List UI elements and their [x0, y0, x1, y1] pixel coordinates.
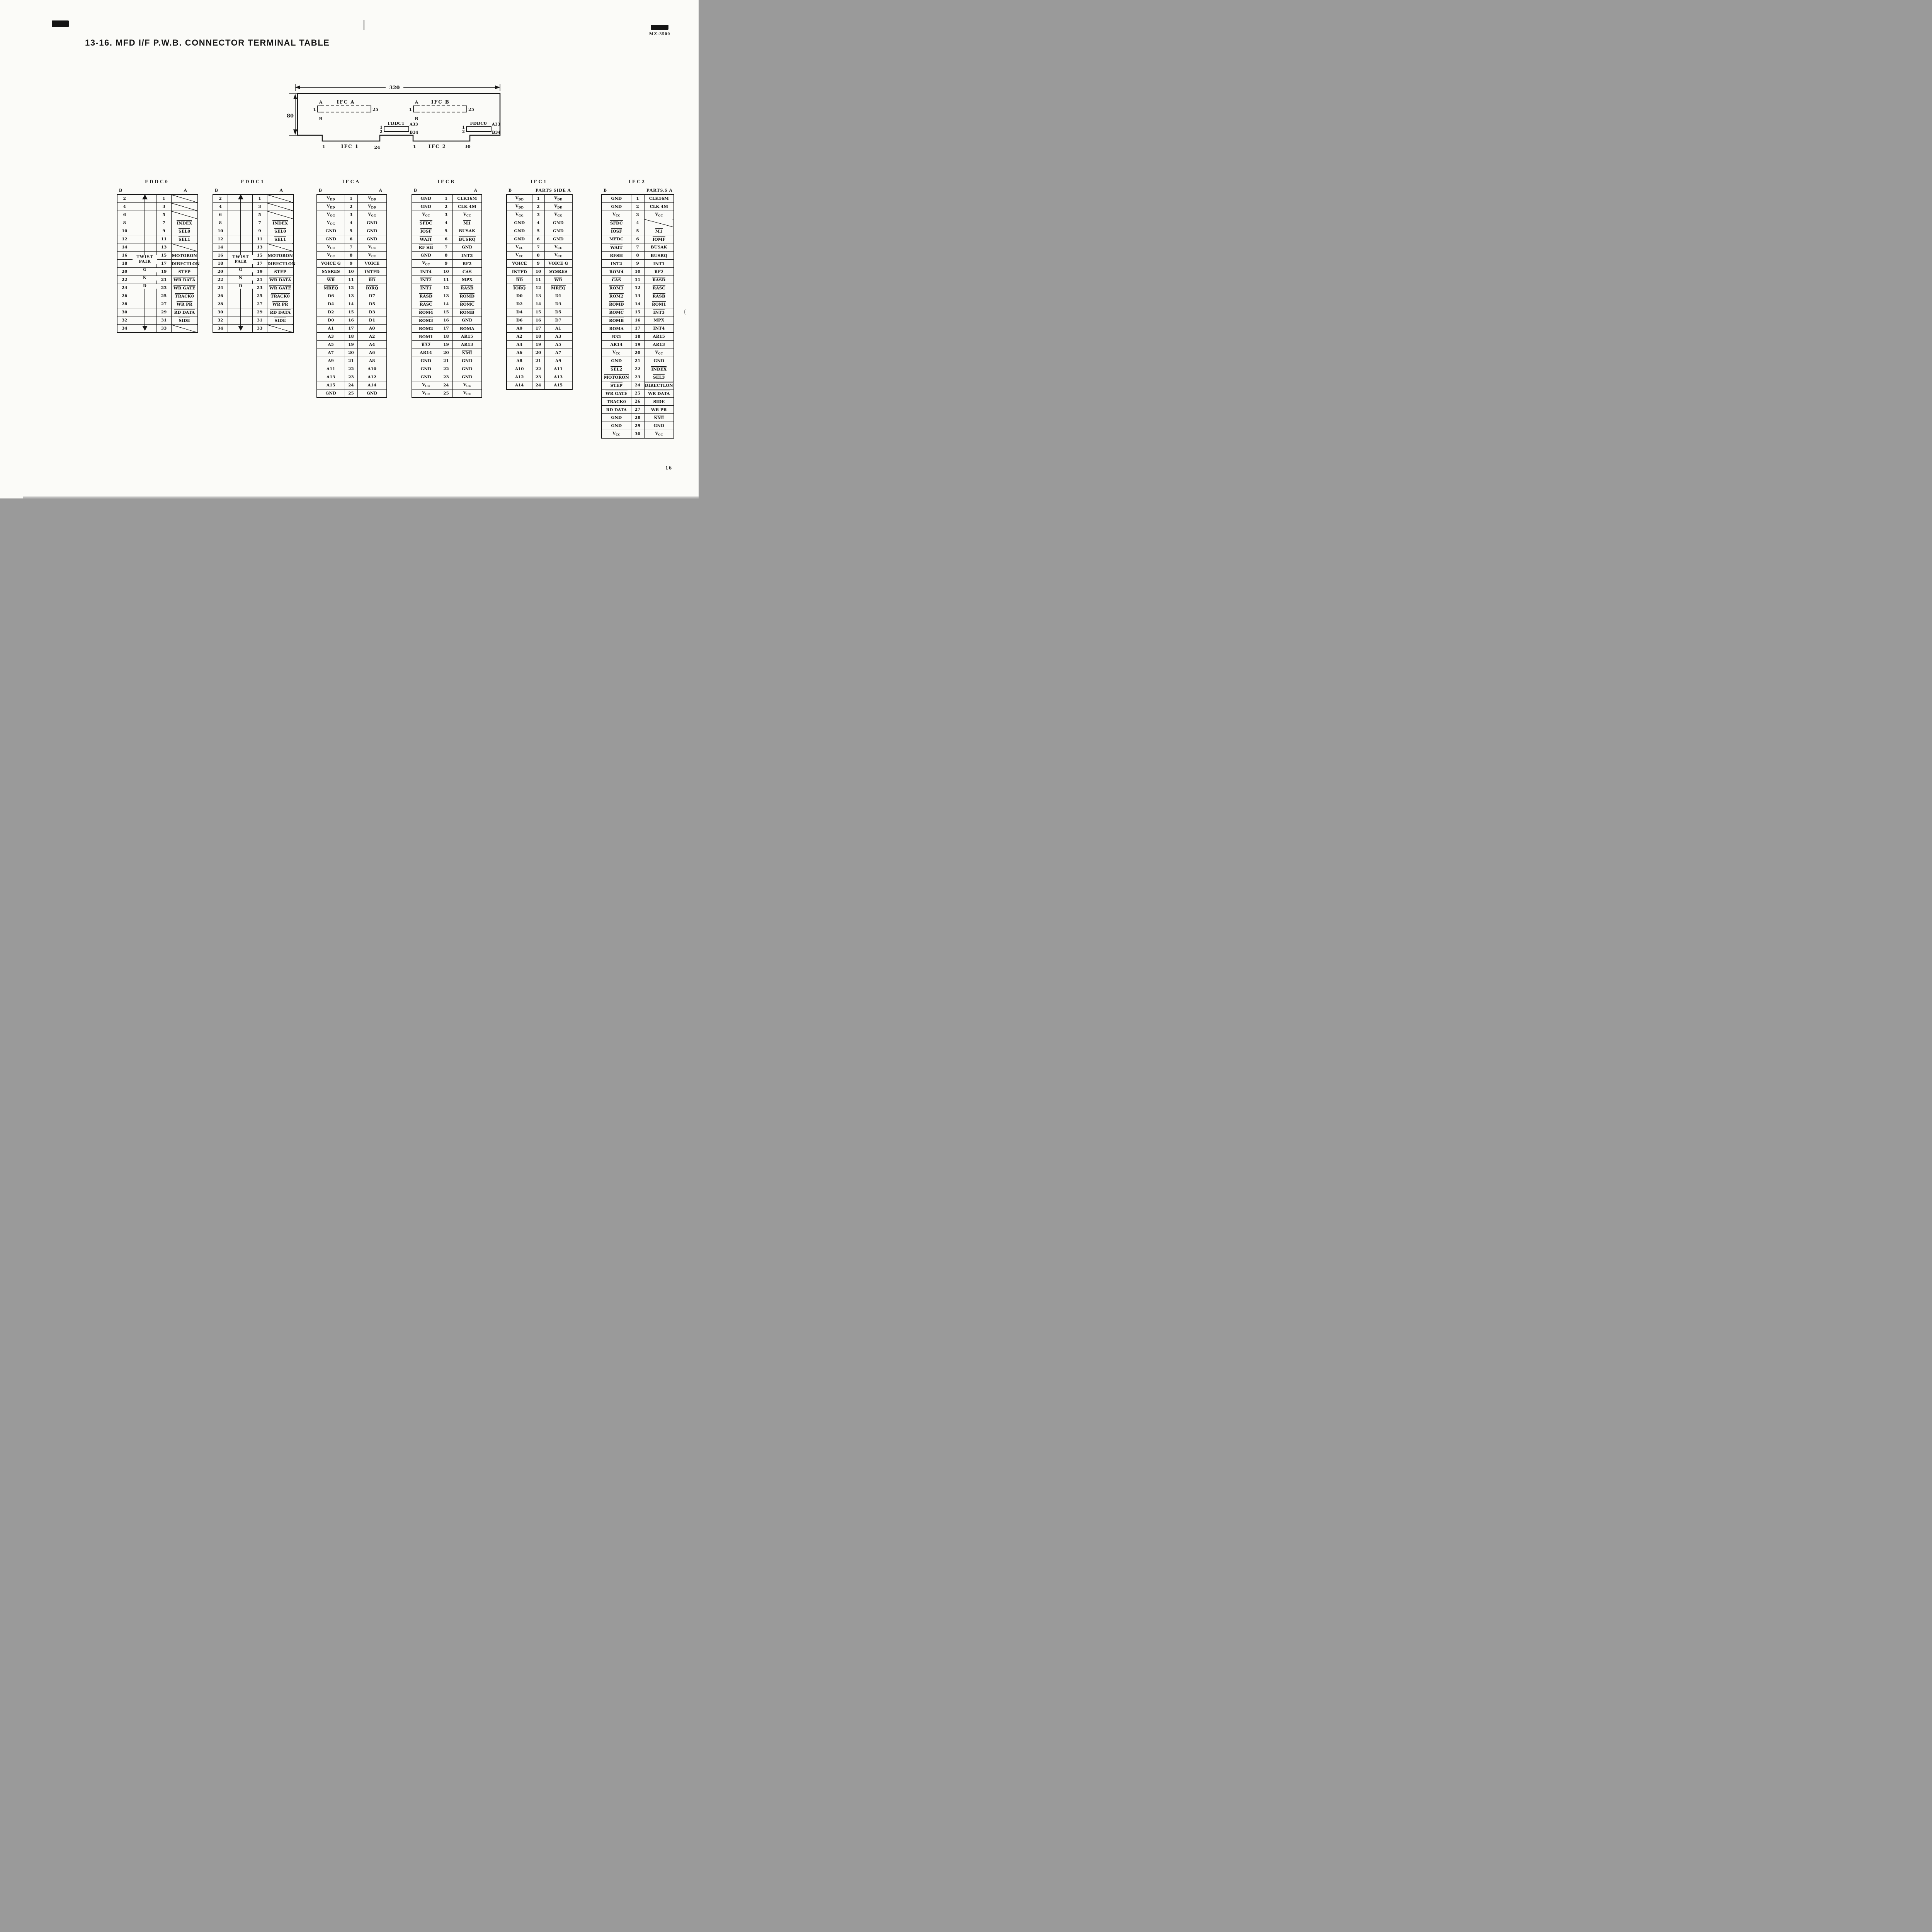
twist-pair-cell	[228, 219, 252, 227]
signal-cell: MOTORON	[171, 252, 198, 260]
table-row: ROM217ROMA	[412, 325, 482, 333]
pin-cell: 6	[117, 211, 132, 219]
signal-cell: AR14	[412, 349, 440, 357]
table-row: A720A6	[317, 349, 387, 357]
pin-cell: 15	[156, 252, 171, 260]
twist-pair-cell	[132, 235, 156, 243]
pin-cell: 12	[440, 284, 452, 292]
table-row: RD DATA27WR PR	[602, 406, 674, 414]
pin-cell: 1	[532, 194, 544, 203]
pin-cell: 24	[440, 381, 452, 389]
pin-cell: 25	[252, 292, 267, 300]
signal-cell: GND	[412, 365, 440, 373]
signal-cell: D7	[544, 316, 572, 325]
manual-page: MZ-3500 13-16. MFD I/F P.W.B. CONNECTOR …	[0, 0, 699, 498]
twist-pair-cell	[132, 260, 156, 268]
pin-cell: 26	[213, 292, 228, 300]
signal-cell: INTFD	[357, 268, 387, 276]
ifcb-pin1: 1	[409, 107, 412, 112]
pin-cell: 7	[631, 243, 644, 252]
no-connection-cell	[267, 325, 294, 333]
table-row: 2221WR DATA	[213, 276, 294, 284]
pin-cell: 13	[532, 292, 544, 300]
table-row: ROMC15INT3	[602, 308, 674, 316]
pin-cell: 10	[532, 268, 544, 276]
signal-cell: VCC	[317, 252, 345, 260]
pin-cell: 11	[631, 276, 644, 284]
table-row: STEP24DIRECTLON	[602, 381, 674, 389]
ifc1-pin24: 24	[374, 145, 380, 150]
fddc0-b34: B34	[492, 131, 500, 135]
signal-cell: GND	[357, 219, 387, 227]
ifcb-label: IFC B	[431, 99, 450, 105]
pin-cell: 4	[213, 203, 228, 211]
signal-cell: GND	[452, 243, 482, 252]
pin-cell: 13	[440, 292, 452, 300]
table-row: 2019STEP	[117, 268, 198, 276]
twist-pair-cell	[228, 243, 252, 252]
table-row: VCC25VCC	[412, 389, 482, 398]
table-row: VGG3VGG	[317, 211, 387, 219]
signal-cell: CLK 4M	[644, 203, 674, 211]
pin-cell: 8	[440, 252, 452, 260]
side-a-label: PARTS SIDE A	[536, 187, 571, 193]
twist-pair-cell	[228, 308, 252, 316]
signal-cell: R32	[602, 333, 631, 341]
pin-cell: 24	[345, 381, 357, 389]
ifcb-pin25: 25	[468, 107, 474, 112]
signal-cell: INDEX	[171, 219, 198, 227]
pin-cell: 6	[345, 235, 357, 243]
signal-cell: ROMD	[602, 300, 631, 308]
table-row: GND4GND	[507, 219, 572, 227]
signal-cell: AR13	[644, 341, 674, 349]
pin-cell: 26	[631, 398, 644, 406]
signal-cell: GND	[507, 227, 532, 235]
table-row: 2019STEP	[213, 268, 294, 276]
table-row: VDD2VDD	[507, 203, 572, 211]
pin-cell: 14	[532, 300, 544, 308]
twist-pair-cell	[228, 284, 252, 292]
pin-cell: 24	[532, 381, 544, 390]
signal-cell: ROM1	[644, 300, 674, 308]
pin-cell: 18	[631, 333, 644, 341]
pin-cell: 20	[213, 268, 228, 276]
pin-cell: 4	[440, 219, 452, 227]
signal-cell: A14	[357, 381, 387, 389]
pin-cell: 12	[631, 284, 644, 292]
signal-cell: RASC	[644, 284, 674, 292]
pin-cell: 10	[213, 227, 228, 235]
signal-cell: D4	[507, 308, 532, 316]
table-row: VDD2VDD	[317, 203, 387, 211]
signal-cell: INT4	[644, 325, 674, 333]
twist-pair-cell	[228, 227, 252, 235]
table-row: D613D7	[317, 292, 387, 300]
signal-cell: VCC	[602, 349, 631, 357]
signal-cell: VOICE G	[317, 260, 345, 268]
terminal-table: VDD1VDDVDD2VDDVGG3VGGGND4GNDGND5GNDGND6G…	[506, 194, 573, 390]
pin-cell: 3	[252, 203, 267, 211]
signal-cell: VCC	[544, 252, 572, 260]
signal-cell: A10	[507, 365, 532, 373]
signal-cell: TRACK0	[171, 292, 198, 300]
signal-cell: ROMA	[452, 325, 482, 333]
ifca-side-b: B	[319, 116, 322, 121]
signal-cell: A0	[507, 325, 532, 333]
pin-cell: 21	[252, 276, 267, 284]
pin-cell: 19	[440, 341, 452, 349]
signal-cell: INT1	[644, 260, 674, 268]
table-row: GND2CLK 4M	[602, 203, 674, 211]
pin-cell: 13	[631, 292, 644, 300]
signal-cell: WR GATE	[267, 284, 294, 292]
signal-cell: D5	[357, 300, 387, 308]
signal-cell: CLK16M	[452, 194, 482, 203]
terminal-table: 21436587INDEX109SEL01211SEL114131615MOTO…	[117, 194, 198, 333]
no-connection-cell	[267, 211, 294, 219]
table-row: GND8INT3	[412, 252, 482, 260]
signal-cell: RFSH	[602, 252, 631, 260]
signal-cell: GND	[602, 422, 631, 430]
table-row: GND1CLK16M	[412, 194, 482, 203]
signal-cell: BUSAK	[452, 227, 482, 235]
signal-cell: MFDC	[602, 235, 631, 243]
pin-cell: 2	[213, 194, 228, 203]
signal-cell: GND	[317, 389, 345, 398]
signal-cell: WR	[544, 276, 572, 284]
twist-pair-cell	[132, 300, 156, 308]
signal-cell: D2	[317, 308, 345, 316]
signal-cell: SFDC	[412, 219, 440, 227]
signal-cell: VCC	[644, 211, 674, 219]
signal-cell: WAIT	[412, 235, 440, 243]
table-row: IORQ12MREQ	[507, 284, 572, 292]
table-row: RD11WR	[507, 276, 572, 284]
no-connection-cell	[267, 194, 294, 203]
pin-cell: 22	[532, 365, 544, 373]
table-row: 3029RD DATA	[213, 308, 294, 316]
table-row: VCC8VCC	[507, 252, 572, 260]
pin-cell: 21	[631, 357, 644, 365]
table-row: D414D5	[317, 300, 387, 308]
table-row: 1817DIRECTLON	[117, 260, 198, 268]
signal-cell: NMI	[644, 414, 674, 422]
pin-cell: 1	[156, 194, 171, 203]
signal-cell: GND	[602, 203, 631, 211]
signal-cell: CAS	[602, 276, 631, 284]
pin-cell: 21	[440, 357, 452, 365]
pin-cell: 24	[117, 284, 132, 292]
terminal-table: VDD1VDDVDD2VDDVGG3VGGVGG4GNDGND5GNDGND6G…	[316, 194, 387, 398]
dim-height-label: 80	[287, 113, 294, 119]
twist-pair-cell	[132, 243, 156, 252]
pin-cell: 17	[532, 325, 544, 333]
table-row: WAIT6BUSRQ	[412, 235, 482, 243]
signal-cell: RD DATA	[267, 308, 294, 316]
table-row: GND25GND	[317, 389, 387, 398]
pin-cell: 29	[631, 422, 644, 430]
table-row: R3219AR13	[412, 341, 482, 349]
table-row: A1424A15	[507, 381, 572, 390]
pin-cell: 9	[532, 260, 544, 268]
signal-cell: GND	[412, 194, 440, 203]
table-row: R3218AR15	[602, 333, 674, 341]
table-row: A821A9	[507, 357, 572, 365]
signal-cell: INDEX	[644, 365, 674, 373]
twist-pair-cell	[132, 308, 156, 316]
signal-cell: M1	[644, 227, 674, 235]
signal-cell: GND	[452, 365, 482, 373]
pin-cell: 12	[532, 284, 544, 292]
signal-cell: IOSF	[412, 227, 440, 235]
signal-cell: WR GATE	[171, 284, 198, 292]
signal-cell: STEP	[602, 381, 631, 389]
table-row: 2423WR GATE	[117, 284, 198, 292]
scan-shadow	[23, 497, 699, 498]
pin-cell: 8	[117, 219, 132, 227]
pin-cell: 2	[532, 203, 544, 211]
ifca-pin1: 1	[313, 107, 316, 112]
pin-cell: 28	[631, 414, 644, 422]
signal-cell: GND	[412, 252, 440, 260]
terminal-table: 21436587INDEX109SEL01211SEL114131615MOTO…	[213, 194, 294, 333]
table-row: GND21GND	[602, 357, 674, 365]
signal-cell: GND	[412, 357, 440, 365]
pin-cell: 18	[345, 333, 357, 341]
table-row: 87INDEX	[117, 219, 198, 227]
signal-cell: WR PR	[171, 300, 198, 308]
signal-cell: D1	[357, 316, 387, 325]
signal-cell: VCC	[412, 211, 440, 219]
twist-pair-cell	[228, 325, 252, 333]
dim-arrow-down	[293, 129, 297, 135]
signal-cell: ROMC	[452, 300, 482, 308]
ifc2-pin30: 30	[464, 144, 471, 149]
pin-cell: 9	[345, 260, 357, 268]
side-a-label: A	[279, 187, 283, 193]
table-row: 2625TRACK0	[117, 292, 198, 300]
signal-cell: A6	[507, 349, 532, 357]
signal-cell: A5	[317, 341, 345, 349]
table-row: 65	[117, 211, 198, 219]
signal-cell: A1	[317, 325, 345, 333]
twist-pair-cell	[228, 211, 252, 219]
table-row: 1413	[213, 243, 294, 252]
pin-cell: 21	[345, 357, 357, 365]
signal-cell: GND	[412, 373, 440, 381]
signal-cell: GND	[357, 227, 387, 235]
dim-arrow-up	[293, 94, 297, 99]
pin-cell: 9	[631, 260, 644, 268]
pin-cell: 25	[345, 389, 357, 398]
signal-cell: RF SH	[412, 243, 440, 252]
table-row: A620A7	[507, 349, 572, 357]
signal-cell: MPX	[452, 276, 482, 284]
table-row: AR1420NMI	[412, 349, 482, 357]
table-row: D016D1	[317, 316, 387, 325]
table-row: GND2CLK 4M	[412, 203, 482, 211]
signal-cell: A2	[357, 333, 387, 341]
table-row: SFDC4M1	[412, 219, 482, 227]
side-b-label: B	[119, 187, 122, 193]
signal-cell: CLK16M	[644, 194, 674, 203]
signal-cell: A13	[317, 373, 345, 381]
table-row: INT410CAS	[412, 268, 482, 276]
pin-cell: 21	[156, 276, 171, 284]
signal-cell: MOTORON	[602, 373, 631, 381]
dim-width-label: 320	[389, 85, 400, 91]
signal-cell: GND	[452, 316, 482, 325]
signal-cell: A1	[544, 325, 572, 333]
no-connection-cell	[171, 243, 198, 252]
pin-cell: 7	[345, 243, 357, 252]
pin-cell: 5	[345, 227, 357, 235]
signal-cell: RD	[507, 276, 532, 284]
signal-cell: ROMB	[602, 316, 631, 325]
signal-cell: SEL1	[267, 235, 294, 243]
table-row: ROM410RF2	[602, 268, 674, 276]
table-row: 65	[213, 211, 294, 219]
pin-cell: 1	[631, 194, 644, 203]
table-row: A1223A13	[507, 373, 572, 381]
signal-cell: VDD	[317, 203, 345, 211]
table-row: 109SEL0	[213, 227, 294, 235]
signal-cell: D5	[544, 308, 572, 316]
signal-cell: AR15	[452, 333, 482, 341]
pin-cell: 27	[252, 300, 267, 308]
signal-cell: GND	[602, 414, 631, 422]
pin-cell: 23	[345, 373, 357, 381]
fddc1-label: FDDC1	[388, 121, 404, 126]
twist-pair-cell	[228, 316, 252, 325]
pin-cell: 19	[252, 268, 267, 276]
signal-cell: A4	[507, 341, 532, 349]
pin-cell: 10	[117, 227, 132, 235]
signal-cell: A0	[357, 325, 387, 333]
table-side-header: BA	[117, 185, 197, 194]
signal-cell: SEL0	[267, 227, 294, 235]
signal-cell: WR DATA	[267, 276, 294, 284]
table-row: INTFD10SYSRES	[507, 268, 572, 276]
pin-cell: 34	[213, 325, 228, 333]
table-row: 1817DIRECTLON	[213, 260, 294, 268]
signal-cell: WR GATE	[602, 389, 631, 398]
side-a-label: A	[379, 187, 383, 193]
signal-cell: ROMA	[602, 325, 631, 333]
pin-cell: 27	[631, 406, 644, 414]
fddc1-b34: B34	[410, 131, 418, 135]
signal-cell: D3	[544, 300, 572, 308]
pin-cell: 30	[213, 308, 228, 316]
signal-cell: INT2	[412, 276, 440, 284]
pin-cell: 12	[345, 284, 357, 292]
signal-cell: RASD	[412, 292, 440, 300]
table-row: WR GATE25WR DATA	[602, 389, 674, 398]
signal-cell: NMI	[452, 349, 482, 357]
signal-cell: D3	[357, 308, 387, 316]
pin-cell: 22	[117, 276, 132, 284]
pin-cell: 26	[117, 292, 132, 300]
table-row: 1615MOTORON	[117, 252, 198, 260]
table-row: CAS11RASD	[602, 276, 674, 284]
pin-cell: 9	[440, 260, 452, 268]
no-connection-cell	[267, 243, 294, 252]
signal-cell: SEL1	[171, 235, 198, 243]
signal-cell: BUSRQ	[644, 252, 674, 260]
signal-cell: GND	[507, 219, 532, 227]
table-row: VCC7VCC	[507, 243, 572, 252]
table-row: A419A5	[507, 341, 572, 349]
signal-cell: RD DATA	[602, 406, 631, 414]
signal-cell: VCC	[357, 252, 387, 260]
signal-cell: VDD	[357, 203, 387, 211]
table-row: GND6GND	[507, 235, 572, 243]
fddc1-pin2: 2	[380, 130, 383, 134]
signal-cell: GND	[507, 235, 532, 243]
signal-cell: D4	[317, 300, 345, 308]
pin-cell: 8	[631, 252, 644, 260]
table-row: IOSF5M1	[602, 227, 674, 235]
signal-cell: RF2	[644, 268, 674, 276]
twist-pair-cell	[228, 300, 252, 308]
pin-cell: 11	[440, 276, 452, 284]
signal-cell: A10	[357, 365, 387, 373]
pin-cell: 7	[252, 219, 267, 227]
pin-cell: 3	[532, 211, 544, 219]
table-row: 3433	[213, 325, 294, 333]
table-row: A218A3	[507, 333, 572, 341]
twist-pair-cell	[228, 260, 252, 268]
stray-pen-mark: (	[684, 308, 686, 315]
pin-cell: 5	[252, 211, 267, 219]
signal-cell: D6	[317, 292, 345, 300]
pin-cell: 3	[440, 211, 452, 219]
pin-cell: 15	[252, 252, 267, 260]
signal-cell: A3	[317, 333, 345, 341]
page-title: 13-16. MFD I/F P.W.B. CONNECTOR TERMINAL…	[85, 38, 330, 48]
pin-cell: 6	[213, 211, 228, 219]
no-connection-cell	[171, 203, 198, 211]
signal-cell: D1	[544, 292, 572, 300]
signal-cell: A12	[507, 373, 532, 381]
pin-cell: 15	[532, 308, 544, 316]
signal-cell: VCC	[317, 243, 345, 252]
table-row: A519A4	[317, 341, 387, 349]
pin-cell: 31	[252, 316, 267, 325]
table-row: VGG4GND	[317, 219, 387, 227]
table-title: IFCA	[316, 179, 386, 185]
table-row: ROMD14ROM1	[602, 300, 674, 308]
twist-pair-cell	[228, 235, 252, 243]
pin-cell: 15	[631, 308, 644, 316]
signal-cell: VDD	[544, 194, 572, 203]
signal-cell: BUSRQ	[452, 235, 482, 243]
pin-cell: 4	[345, 219, 357, 227]
table-row: 1615MOTORON	[213, 252, 294, 260]
pin-cell: 1	[440, 194, 452, 203]
signal-cell: A15	[317, 381, 345, 389]
pin-cell: 20	[440, 349, 452, 357]
pin-cell: 5	[156, 211, 171, 219]
pin-cell: 4	[117, 203, 132, 211]
pin-cell: 10	[631, 268, 644, 276]
signal-cell: WR PR	[267, 300, 294, 308]
signal-cell: D6	[507, 316, 532, 325]
pin-cell: 11	[345, 276, 357, 284]
pin-cell: 30	[117, 308, 132, 316]
signal-cell: R32	[412, 341, 440, 349]
